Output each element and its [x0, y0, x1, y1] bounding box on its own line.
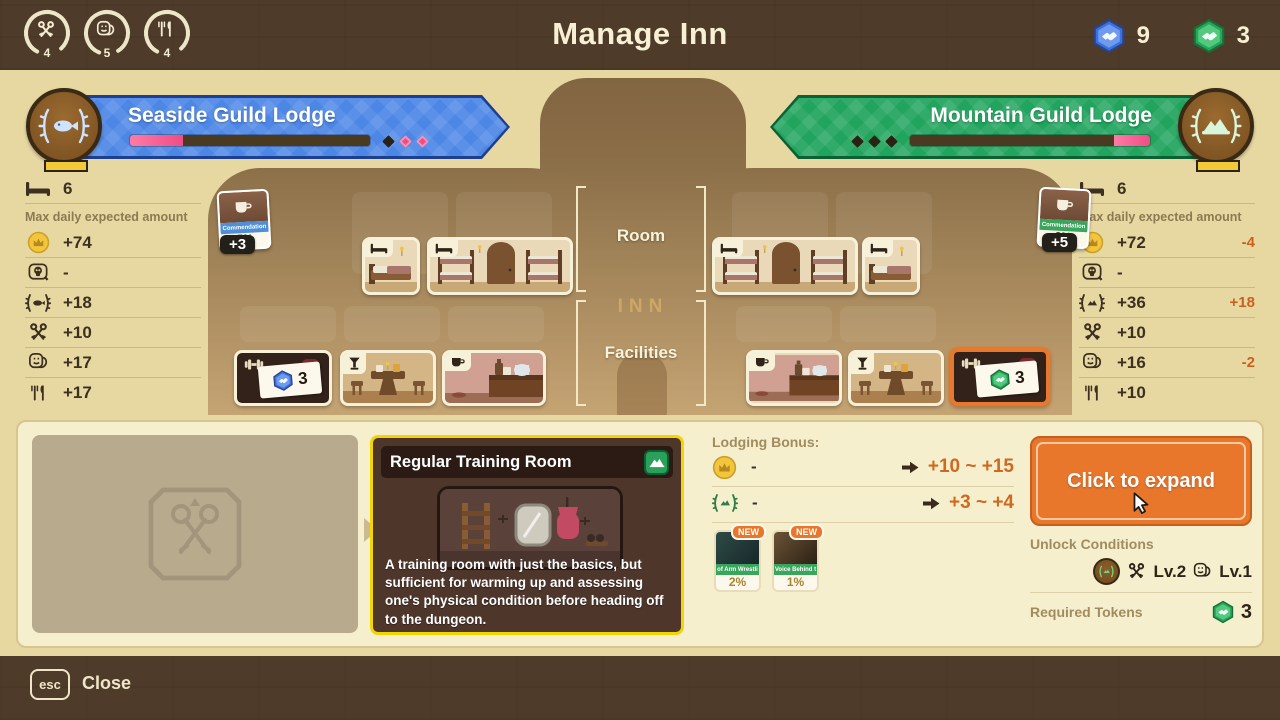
- seaside-lodge-name: Seaside Guild Lodge: [128, 104, 336, 128]
- blue-token-count: 9: [1137, 22, 1150, 50]
- bed-icon: [715, 240, 743, 257]
- click-to-expand-button[interactable]: Click to expand: [1030, 436, 1252, 526]
- keys-level-requirement: Lv.2: [1153, 562, 1186, 582]
- stat-row-masks: +17: [25, 348, 201, 378]
- stat-row-food: +10: [1079, 378, 1255, 408]
- green-token-icon: [988, 368, 1012, 392]
- facilities-bracket-left: [576, 300, 586, 406]
- crossed-keys-icon: [1079, 321, 1105, 345]
- bed-count-row: 6: [25, 174, 201, 204]
- stat-delta: +18: [1230, 294, 1255, 311]
- laurel-mtn-icon: [712, 493, 738, 513]
- stat-row-keys: +10: [1079, 318, 1255, 348]
- bed-count: 6: [63, 179, 72, 199]
- stat-value: +10: [1117, 383, 1146, 403]
- crossed-keys-icon: [1126, 561, 1147, 582]
- stat-row-skull: -: [1079, 258, 1255, 288]
- bed-icon: [365, 240, 393, 257]
- masks-level-requirement: Lv.1: [1219, 562, 1252, 582]
- mountain-lodge-banner: Mountain Guild Lodge: [770, 95, 1222, 159]
- arrow-right-icon: [900, 460, 920, 475]
- detail-card-title: Regular Training Room: [381, 453, 644, 472]
- stat-value: +10: [1117, 323, 1146, 343]
- stat-row-skull: -: [25, 258, 201, 288]
- esc-key[interactable]: esc: [30, 669, 70, 700]
- room-card-single-left[interactable]: [362, 237, 420, 295]
- event-card-voice-behind[interactable]: NEW Voice Behind t 1%: [772, 530, 819, 592]
- event-card-arm-wrestling[interactable]: NEW of Arm Wrestli 2%: [714, 530, 761, 592]
- required-tokens-value: 3: [1241, 601, 1252, 624]
- room-card-single-right[interactable]: [862, 237, 920, 295]
- green-token-count: 3: [1237, 22, 1250, 50]
- stat-value: +74: [63, 233, 92, 253]
- bottom-bar: [0, 656, 1280, 720]
- crown-coin-icon: [712, 455, 737, 480]
- close-button[interactable]: Close: [82, 673, 131, 694]
- event-card-label: Voice Behind t: [774, 564, 817, 575]
- emblem-tab: [44, 160, 88, 172]
- seaside-progress-bar: [130, 135, 370, 146]
- manage-inn-screen: 4 5: [0, 0, 1280, 720]
- facility-card-tavern-right[interactable]: [848, 350, 944, 406]
- token-cost: 3: [1014, 367, 1025, 388]
- detail-card-header: Regular Training Room: [381, 446, 673, 478]
- mountain-badge-icon: [644, 450, 669, 475]
- room-zone-label: Room: [586, 226, 696, 246]
- crown-coin-icon: [25, 231, 51, 255]
- seaside-lodge-emblem: [26, 88, 102, 164]
- stat-row-gold: +74: [25, 228, 201, 258]
- stats-header: Max daily expected amount: [25, 204, 201, 228]
- facilities-zone-label: Facilities: [586, 343, 696, 363]
- token-cost: 3: [297, 368, 308, 389]
- bonus-range: +10 ~ +15: [928, 456, 1014, 478]
- event-card-percent: 2%: [716, 575, 759, 589]
- goblet-icon: [343, 353, 366, 374]
- empty-facility-slot[interactable]: [240, 306, 336, 342]
- new-badge: NEW: [731, 524, 766, 540]
- facility-card-cafe-right[interactable]: [746, 350, 842, 406]
- cup-icon: [749, 353, 775, 371]
- mountain-laurel-icon: [1190, 104, 1242, 150]
- stat-delta: -2: [1242, 354, 1255, 371]
- mountain-stats-panel: 6 Max daily expected amount +72 -4 - +36…: [1079, 174, 1255, 408]
- stat-value: +17: [63, 383, 92, 403]
- stat-value: -: [63, 263, 69, 283]
- facility-detail-card: Regular Training Room: [370, 435, 684, 635]
- facilities-bracket-right: [696, 300, 706, 406]
- stats-header: Max daily expected amount: [1079, 204, 1255, 228]
- bed-count: 6: [1117, 179, 1126, 199]
- unlock-conditions-label: Unlock Conditions: [1030, 536, 1154, 552]
- green-token-counter: 3: [1191, 18, 1250, 54]
- current-value: -: [751, 457, 757, 477]
- room-card-bunk-left[interactable]: [427, 237, 573, 295]
- stat-value: +17: [63, 353, 92, 373]
- emblem-tab: [1196, 160, 1240, 172]
- commendation-bonus-badge: +5: [1042, 233, 1077, 252]
- green-token-icon: [1191, 18, 1227, 54]
- required-tokens-label: Required Tokens: [1030, 604, 1143, 620]
- stat-value: -: [1117, 263, 1123, 283]
- bed-icon: [430, 240, 458, 257]
- masks-icon: [25, 351, 51, 375]
- arrow-right-icon: [921, 496, 941, 511]
- stat-value: +10: [63, 323, 92, 343]
- detail-card-description: A training room with just the basics, bu…: [385, 556, 671, 629]
- crossed-keys-icon: [25, 321, 51, 345]
- bed-icon: [865, 240, 893, 257]
- new-badge: NEW: [789, 524, 824, 540]
- mountain-laurel-mini-emblem: [1093, 558, 1120, 585]
- detail-panel: Regular Training Room: [16, 420, 1264, 648]
- page-title: Manage Inn: [0, 16, 1280, 52]
- empty-facility-slot[interactable]: [344, 306, 440, 342]
- lodging-bonus-row-gold: - +10 ~ +15: [712, 452, 1014, 482]
- bonus-range: +3 ~ +4: [949, 492, 1014, 514]
- event-card-label: of Arm Wrestli: [716, 564, 759, 575]
- stat-row-fame: +36 +18: [1079, 288, 1255, 318]
- cup-icon: [219, 191, 269, 223]
- utensils-icon: [25, 381, 51, 405]
- empty-selection-placeholder: [32, 435, 358, 633]
- blue-token-icon: [1091, 18, 1127, 54]
- stat-delta: -4: [1242, 234, 1255, 251]
- top-bar: 4 5: [0, 0, 1280, 70]
- token-cost-badge: 3: [975, 360, 1040, 397]
- seaside-rank-pips: [380, 133, 431, 151]
- goblet-icon: [851, 353, 874, 374]
- cursor-icon: [1128, 490, 1154, 516]
- lodging-bonus-row-fame: - +3 ~ +4: [712, 488, 1014, 518]
- stat-row-gold: +72 -4: [1079, 228, 1255, 258]
- cup-icon: [1040, 189, 1090, 221]
- stat-row-keys: +10: [25, 318, 201, 348]
- stat-value: +36: [1117, 293, 1146, 313]
- facility-card-cafe-left[interactable]: [442, 350, 546, 406]
- token-cost-badge: 3: [258, 361, 323, 398]
- cup-icon: [445, 353, 471, 371]
- seaside-stats-panel: 6 Max daily expected amount +74 - +18: [25, 174, 201, 408]
- required-tokens-row: Required Tokens 3: [1030, 600, 1252, 624]
- stat-row-fame: +18: [25, 288, 201, 318]
- empty-facility-slot[interactable]: [840, 306, 936, 342]
- mountain-lodge-emblem: [1178, 88, 1254, 164]
- facility-card-tavern-left[interactable]: [340, 350, 436, 406]
- mountain-lodge-name: Mountain Guild Lodge: [930, 104, 1152, 128]
- stat-row-masks: +16 -2: [1079, 348, 1255, 378]
- bed-count-row: 6: [1079, 174, 1255, 204]
- lodging-bonus-label: Lodging Bonus:: [712, 434, 819, 450]
- laurel-fish-icon: [25, 291, 51, 315]
- commendation-bonus-badge: +3: [220, 235, 255, 254]
- utensils-icon: [1079, 381, 1105, 405]
- empty-facility-slot[interactable]: [736, 306, 832, 342]
- skull-icon: [25, 261, 51, 285]
- masks-icon: [1079, 351, 1105, 375]
- blue-token-icon: [271, 369, 295, 393]
- bed-icon: [25, 177, 51, 201]
- stat-value: +16: [1117, 353, 1146, 373]
- stat-row-food: +17: [25, 378, 201, 408]
- mountain-progress-bar: [910, 135, 1150, 146]
- inn-sign: INN: [540, 296, 746, 318]
- room-bracket-right: [696, 186, 706, 292]
- crossed-keys-watermark-icon: [135, 474, 255, 594]
- stat-value: +18: [63, 293, 92, 313]
- facility-card-training-locked-selected[interactable]: 3: [950, 348, 1050, 406]
- mountain-rank-pips: [849, 133, 900, 151]
- stat-value: +72: [1117, 233, 1146, 253]
- masks-icon: [1192, 561, 1213, 582]
- room-bracket-left: [576, 186, 586, 292]
- empty-facility-slot[interactable]: [448, 306, 544, 342]
- blue-token-counter: 9: [1091, 18, 1150, 54]
- facility-card-training-locked-left[interactable]: 3: [234, 350, 332, 406]
- skull-icon: [1079, 261, 1105, 285]
- current-value: -: [752, 493, 758, 513]
- event-card-percent: 1%: [774, 575, 817, 589]
- room-card-bunk-right[interactable]: [712, 237, 858, 295]
- laurel-mtn-icon: [1079, 291, 1105, 315]
- unlock-conditions-row: Lv.2 Lv.1: [1030, 558, 1252, 585]
- seaside-lodge-banner: Seaside Guild Lodge: [58, 95, 510, 159]
- green-token-icon: [1211, 600, 1235, 624]
- fish-laurel-icon: [38, 104, 90, 150]
